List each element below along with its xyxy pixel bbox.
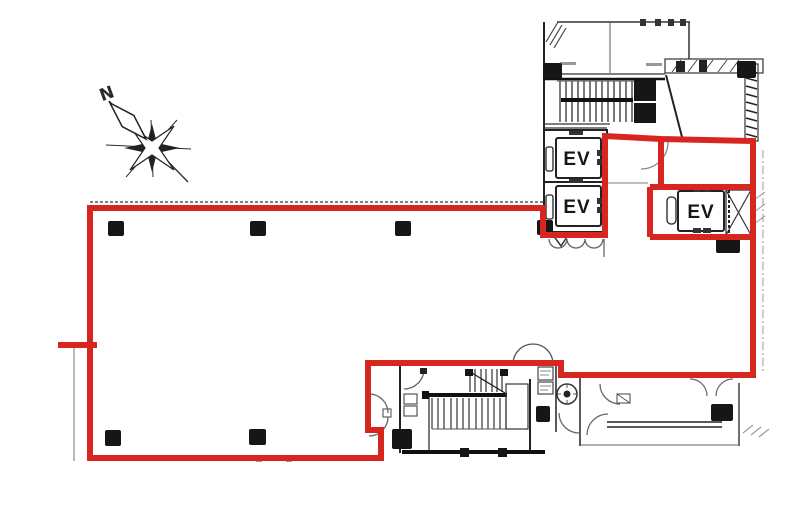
toilet-fixture [404, 406, 417, 416]
door-arc [587, 414, 608, 435]
toilet-fixture [404, 394, 417, 404]
north-label: N [97, 82, 117, 106]
structural-column [395, 221, 411, 236]
structural-column [543, 63, 562, 79]
shaft-label-box [538, 367, 553, 380]
compass-needle [110, 103, 146, 139]
elevator-label: EV [687, 202, 714, 223]
elevator-label: EV [563, 149, 590, 170]
stairwell-upper [543, 19, 690, 130]
reference-lines [74, 150, 763, 461]
structural-column [716, 239, 740, 253]
lower-right-wing [581, 379, 769, 446]
floor-plan-page: EV EV EV [0, 0, 800, 509]
counterweight [546, 147, 553, 171]
structural-column [711, 404, 733, 421]
stair-landing [506, 384, 528, 429]
structural-columns [105, 61, 756, 449]
counterweight [546, 195, 553, 219]
tiny-annotation-mark [560, 62, 576, 65]
tiny-annotation-mark [646, 63, 662, 66]
floor-plan-drawing: EV EV EV [0, 0, 800, 509]
stair-handrail [561, 98, 633, 102]
exterior-hatch-marks [743, 425, 769, 437]
structural-column [392, 429, 412, 449]
structural-column [536, 406, 550, 422]
stair-handrail [425, 393, 507, 397]
structural-column [249, 429, 266, 445]
structural-column [108, 221, 124, 236]
stair-void [634, 80, 656, 101]
elevator-label: EV [563, 197, 590, 218]
elevator-right: EV [667, 187, 751, 235]
braced-shaft [726, 190, 751, 235]
shaft-label-box [538, 382, 553, 394]
door-arc [369, 394, 388, 413]
round-fixture [557, 384, 577, 404]
stairwell-lower [422, 369, 528, 452]
stair-void [634, 103, 656, 123]
double-door-arcs [690, 379, 733, 396]
structural-column [105, 430, 121, 446]
structural-column [737, 61, 756, 78]
door-arc [559, 413, 579, 433]
structural-column [250, 221, 266, 236]
counterweight [667, 197, 676, 224]
lease-boundary-outline [58, 136, 753, 458]
compass-rose: N [97, 82, 191, 182]
angled-wall [666, 75, 682, 137]
